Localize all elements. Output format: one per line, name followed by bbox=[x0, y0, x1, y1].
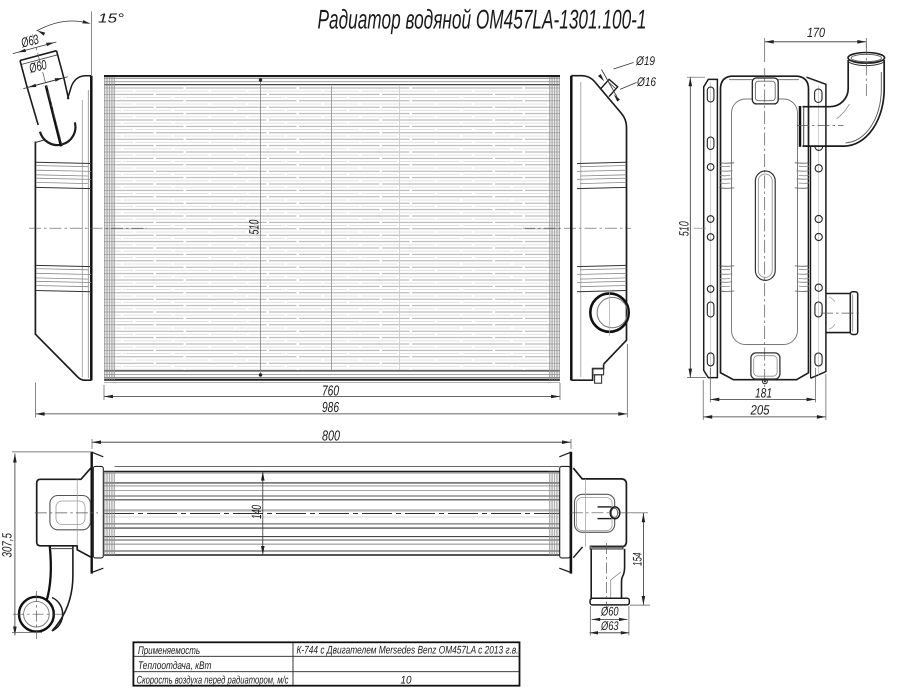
svg-text:205: 205 bbox=[750, 403, 770, 418]
svg-text:Ø19: Ø19 bbox=[635, 54, 655, 68]
svg-text:986: 986 bbox=[322, 400, 340, 416]
svg-text:307,5: 307,5 bbox=[0, 533, 15, 558]
svg-text:170: 170 bbox=[807, 25, 825, 40]
svg-text:800: 800 bbox=[322, 428, 340, 444]
svg-text:15°: 15° bbox=[98, 10, 124, 25]
svg-text:Ø60: Ø60 bbox=[600, 604, 618, 618]
svg-text:140: 140 bbox=[249, 505, 264, 519]
svg-text:760: 760 bbox=[322, 383, 339, 399]
svg-text:Применяемость: Применяемость bbox=[138, 645, 200, 657]
svg-text:Радиатор водяной ОМ457LA-1301.: Радиатор водяной ОМ457LA-1301.100-1 bbox=[318, 5, 647, 35]
svg-text:Теплоотдача, кВт: Теплоотдача, кВт bbox=[138, 660, 212, 672]
svg-text:181: 181 bbox=[755, 386, 772, 401]
svg-text:Ø63: Ø63 bbox=[600, 619, 618, 633]
svg-text:Ø16: Ø16 bbox=[636, 75, 656, 89]
svg-text:510: 510 bbox=[676, 221, 691, 236]
svg-text:10: 10 bbox=[401, 675, 413, 687]
svg-text:154: 154 bbox=[630, 552, 644, 566]
svg-text:К-744 с Двигателем Mersedes Be: К-744 с Двигателем Mersedes Benz ОМ457LA… bbox=[297, 644, 519, 656]
svg-text:510: 510 bbox=[247, 219, 262, 234]
svg-text:Скорость воздуха перед радиато: Скорость воздуха перед радиатором, м/с bbox=[137, 675, 289, 687]
